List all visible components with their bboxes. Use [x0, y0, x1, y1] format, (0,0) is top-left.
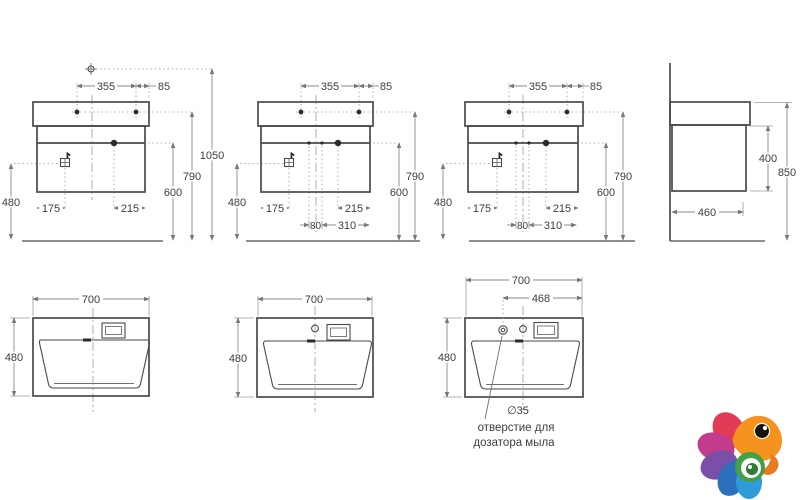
siphon-symbol [493, 154, 503, 167]
top-view-2: 700 480 [226, 294, 373, 413]
drain-point [335, 140, 341, 146]
dim-600-label: 600 [597, 187, 615, 199]
dim-80-label: 80 [310, 221, 322, 232]
dim-600-label: 600 [164, 187, 182, 199]
chameleon-eye [755, 424, 769, 438]
washbasin-front [258, 102, 373, 126]
soap-dispenser-note-line2: дозатора мыла [473, 437, 555, 449]
drain-point [111, 140, 117, 146]
washbasin-front [33, 102, 149, 126]
mount-hole-right [134, 110, 139, 115]
dim-215-label: 215 [345, 203, 363, 215]
dim-175-label: 175 [473, 203, 491, 215]
dim-790-label: 790 [614, 171, 632, 183]
dim-175-label: 175 [42, 203, 60, 215]
dim-355-label: 355 [529, 81, 547, 93]
fix-hole-right [320, 141, 323, 144]
dim-460-label: 460 [698, 207, 716, 219]
top-view-3: 700 468 480 ∅35 отверстие для дозатора м… [435, 275, 583, 450]
fix-hole-right [527, 141, 530, 144]
dim-700-label: 700 [82, 294, 100, 306]
dim-85-label: 85 [380, 81, 392, 93]
dim-175-label: 175 [266, 203, 284, 215]
dim-700-label: 700 [305, 294, 323, 306]
leader-line [485, 336, 502, 419]
siphon-symbol [285, 154, 295, 167]
cabinet-front [261, 126, 370, 192]
mount-height-mark [85, 63, 97, 75]
dim-480-label: 480 [229, 353, 247, 365]
cabinet-side [672, 125, 746, 191]
dim-700-label: 700 [512, 275, 530, 287]
dim-85-label: 85 [590, 81, 602, 93]
dim-468-label: 468 [532, 293, 550, 305]
dim-80-label: 80 [517, 221, 529, 232]
dim-215-label: 215 [553, 203, 571, 215]
washbasin-top [465, 318, 583, 397]
dim-480-label: 480 [228, 197, 246, 209]
dim-790-label: 790 [183, 171, 201, 183]
siphon-symbol [61, 154, 71, 167]
dim-790-label: 790 [406, 171, 424, 183]
drain-point [543, 140, 549, 146]
basin-bowl [472, 341, 580, 389]
dim-480-label: 480 [5, 352, 23, 364]
side-view: 400 850 460 [670, 63, 799, 241]
technical-drawing: 355 85 1050 790 600 480 175 215 [0, 0, 800, 500]
dim-480-label: 480 [438, 352, 456, 364]
dim-310-label: 310 [338, 220, 356, 232]
dim-215-label: 215 [121, 203, 139, 215]
top-view-1: 700 480 [2, 294, 150, 413]
soap-dispenser-hole [499, 326, 507, 334]
soap-dispenser-note-line1: отверстие для [478, 422, 555, 434]
chameleon-logo [693, 406, 782, 500]
basin-bowl [39, 340, 149, 388]
dim-355-label: 355 [97, 81, 115, 93]
dim-480-label: 480 [434, 197, 452, 209]
dim-400-label: 400 [759, 153, 777, 165]
front-view-2: 355 85 790 600 480 175 215 80 310 [225, 81, 427, 242]
dim-85-label: 85 [158, 81, 170, 93]
fix-hole-left [307, 141, 310, 144]
front-view-1: 355 85 1050 790 600 480 175 215 [0, 63, 227, 241]
fix-hole-left [514, 141, 517, 144]
mount-hole-left [75, 110, 80, 115]
hole-diameter-label: ∅35 [507, 405, 529, 417]
dim-480-label: 480 [2, 197, 20, 209]
washbasin-front [465, 102, 583, 126]
drawing-sheet: 355 85 1050 790 600 480 175 215 [0, 0, 800, 500]
dim-1050-label: 1050 [200, 150, 224, 162]
dim-600-label: 600 [390, 187, 408, 199]
front-view-3: 355 85 790 600 480 175 215 80 310 [431, 81, 635, 242]
dim-310-label: 310 [544, 220, 562, 232]
cabinet-front [37, 126, 145, 192]
washbasin-top [33, 318, 149, 396]
basin-bowl [264, 341, 372, 389]
dim-850-label: 850 [778, 167, 796, 179]
washbasin-side [670, 102, 750, 125]
dim-355-label: 355 [321, 81, 339, 93]
